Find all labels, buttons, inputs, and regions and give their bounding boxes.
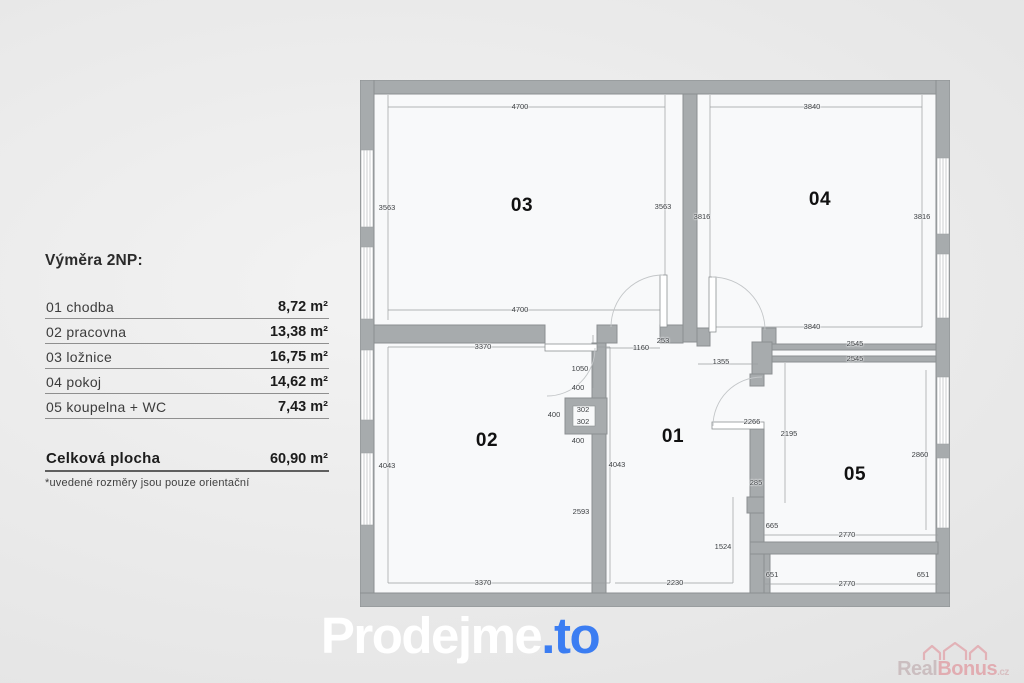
dimension-label: 1050 (572, 365, 589, 373)
total-label: Celková plocha (46, 450, 160, 467)
legend-row: 02 pracovna 13,38 m² (45, 322, 329, 344)
dimension-label: 1160 (633, 344, 649, 352)
room-area: 13,38 m² (270, 324, 328, 340)
dimension-label: 2593 (573, 508, 590, 516)
dimension-label: 2266 (744, 418, 761, 426)
logo-suffix-text: .to (541, 607, 599, 664)
watermark-text: RealBonus.cz (888, 659, 1018, 679)
room-label: 03 ložnice (46, 349, 112, 365)
dimension-label: 665 (766, 522, 779, 530)
floor-plan: 4700356335634700384038163816384025452545… (360, 80, 950, 607)
room-area: 8,72 m² (278, 299, 328, 315)
legend-total-row: Celková plocha 60,90 m² (45, 448, 329, 472)
legend-row: 05 koupelna + WC 7,43 m² (45, 397, 329, 419)
dimension-label: 651 (917, 571, 930, 579)
dimension-label: 3563 (655, 203, 672, 211)
dimension-label: 2195 (781, 430, 798, 438)
dimension-label: 3840 (804, 103, 821, 111)
dimension-label: 3370 (475, 343, 492, 351)
dimension-label: 2545 (847, 355, 864, 363)
dimension-label: 400 (572, 437, 585, 445)
room-number-label: 04 (809, 189, 831, 211)
dimension-label: 3840 (804, 323, 821, 331)
total-area: 60,90 m² (270, 451, 328, 467)
dimension-label: 2770 (839, 531, 856, 539)
dimension-label: 4700 (512, 306, 529, 314)
room-area: 16,75 m² (270, 349, 328, 365)
room-label: 01 chodba (46, 299, 114, 315)
legend-row: 03 ložnice 16,75 m² (45, 347, 329, 369)
dimension-label: 4043 (609, 461, 626, 469)
room-label: 02 pracovna (46, 324, 126, 340)
dimension-label: 400 (572, 384, 585, 392)
dimension-label: 2230 (667, 579, 684, 587)
dimension-label: 253 (657, 337, 670, 345)
dimension-label: 2770 (839, 580, 856, 588)
brand-logo: Prodejme.to (0, 610, 920, 661)
room-area: 7,43 m² (278, 399, 328, 415)
dimension-label: 302 (577, 418, 590, 426)
dimension-label: 3563 (379, 204, 396, 212)
legend-row: 01 chodba 8,72 m² (45, 297, 329, 319)
dimension-label: 4700 (512, 103, 529, 111)
room-number-label: 03 (511, 195, 533, 217)
legend-title: Výměra 2NP: (45, 252, 329, 270)
dimension-label: 3816 (914, 213, 931, 221)
dimension-label: 651 (766, 571, 779, 579)
room-number-label: 02 (476, 430, 498, 452)
dimension-label: 3370 (475, 579, 492, 587)
room-label: 05 koupelna + WC (46, 399, 166, 415)
area-legend: Výměra 2NP: 01 chodba 8,72 m² 02 pracovn… (45, 252, 329, 489)
dimension-label: 1524 (715, 543, 732, 551)
dimension-label: 3816 (694, 213, 711, 221)
room-label: 04 pokoj (46, 374, 101, 390)
logo-text: Prodejme (321, 607, 541, 664)
dimension-label: 1355 (713, 358, 730, 366)
dimension-label: 2860 (912, 451, 929, 459)
legend-row: 04 pokoj 14,62 m² (45, 372, 329, 394)
dimension-label: 302 (577, 406, 590, 414)
watermark-realbonus: RealBonus.cz (888, 642, 1018, 679)
room-number-label: 05 (844, 464, 866, 486)
room-number-label: 01 (662, 426, 684, 448)
dimension-label: 285 (750, 479, 763, 487)
room-area: 14,62 m² (270, 374, 328, 390)
dimension-label: 4043 (379, 462, 396, 470)
dimension-label: 2545 (847, 340, 864, 348)
dimension-label: 400 (548, 411, 561, 419)
legend-note: *uvedené rozměry jsou pouze orientační (45, 477, 329, 489)
